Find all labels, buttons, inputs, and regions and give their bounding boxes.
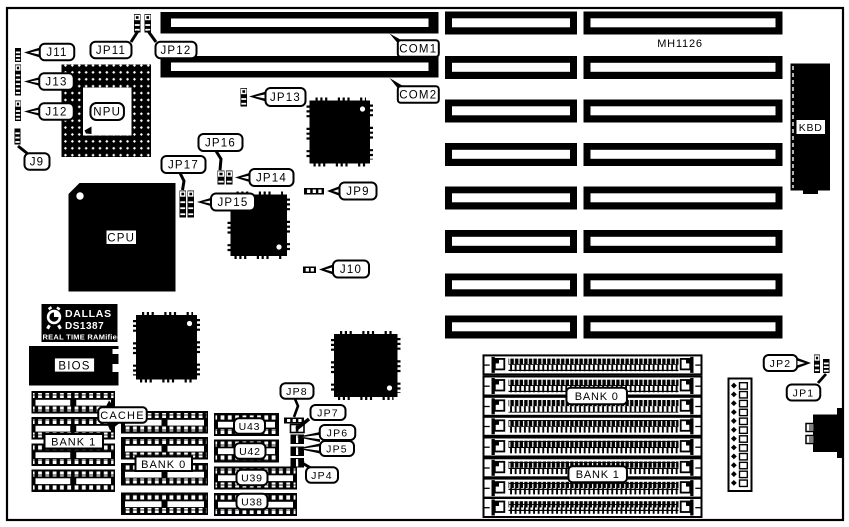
svg-text:JP11: JP11 — [96, 45, 126, 57]
svg-text:JP12: JP12 — [160, 45, 191, 57]
svg-text:J13: J13 — [45, 77, 67, 89]
svg-text:BANK 1: BANK 1 — [51, 437, 96, 449]
svg-text:JP6: JP6 — [327, 427, 349, 439]
svg-text:CACHE: CACHE — [100, 410, 145, 422]
svg-text:JP7: JP7 — [317, 407, 339, 419]
svg-text:BANK 0: BANK 0 — [575, 391, 619, 403]
svg-text:JP17: JP17 — [168, 160, 199, 172]
svg-text:JP15: JP15 — [217, 197, 248, 209]
svg-text:DALLAS: DALLAS — [65, 308, 112, 320]
svg-text:REAL TIME RAMified: REAL TIME RAMified — [43, 333, 123, 342]
svg-text:MH1126: MH1126 — [657, 38, 703, 50]
svg-text:JP8: JP8 — [286, 386, 308, 398]
svg-text:NPU: NPU — [93, 107, 121, 119]
svg-text:KBD: KBD — [799, 122, 823, 134]
svg-text:BANK 0: BANK 0 — [141, 459, 186, 471]
svg-text:JP5: JP5 — [326, 443, 348, 455]
svg-text:CPU: CPU — [107, 232, 135, 244]
svg-text:JP16: JP16 — [205, 138, 236, 150]
svg-text:BIOS: BIOS — [58, 360, 90, 372]
svg-text:U42: U42 — [239, 446, 261, 458]
svg-text:BANK 1: BANK 1 — [576, 469, 620, 481]
svg-text:JP4: JP4 — [311, 470, 333, 482]
svg-text:U39: U39 — [241, 472, 263, 484]
svg-text:JP2: JP2 — [770, 358, 792, 370]
svg-text:J9: J9 — [30, 157, 45, 169]
svg-text:COM1: COM1 — [399, 44, 437, 56]
svg-text:JP1: JP1 — [793, 387, 815, 399]
svg-text:JP14: JP14 — [256, 173, 287, 185]
svg-text:U38: U38 — [241, 496, 263, 508]
svg-text:J12: J12 — [45, 107, 67, 119]
svg-text:JP13: JP13 — [270, 92, 301, 104]
svg-text:U43: U43 — [239, 421, 261, 433]
svg-text:J11: J11 — [46, 47, 67, 59]
svg-text:DS1387: DS1387 — [65, 321, 104, 332]
svg-text:JP9: JP9 — [346, 186, 369, 198]
svg-text:J10: J10 — [340, 264, 362, 276]
svg-text:COM2: COM2 — [399, 90, 437, 102]
